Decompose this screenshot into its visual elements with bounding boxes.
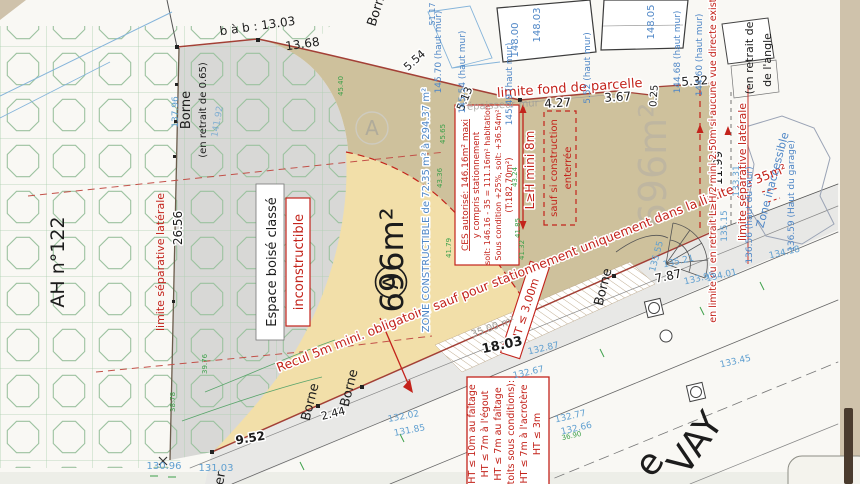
zone-constructible-label: ZONE CONSTRUCTIBLE de 72.35 m² à 294.37 …	[420, 88, 432, 332]
level-haut-mur: 145.49 (haut mur)	[505, 43, 515, 126]
road-level: 130.96	[147, 461, 182, 472]
heights-rules-box: HT ≤ 10m au faîtage HT ≤ 7m à l'égout HT…	[467, 377, 549, 484]
level-haut-mur: 136.56 (haut du mur)	[745, 166, 755, 263]
dim-26-56: 26.56	[171, 211, 185, 245]
parcel-area: 696m²	[373, 207, 411, 312]
ces-l3: soit: 146.16 - 35 = 111.16m² habitation	[483, 105, 492, 265]
borne-retrait-label: (en retrait de 0.65)	[198, 62, 209, 158]
level-137-96: 137.96	[171, 96, 181, 128]
ces-l4: Sous condition +25%, soit: +36.54m²	[494, 109, 503, 260]
cadastral-site-plan: Espace boisé classé inconstructible CES …	[0, 0, 860, 484]
ebc-line2: inconstructible	[292, 214, 307, 310]
heights-l3: HT ≤ 7m au faîtage	[493, 387, 504, 481]
retrait-angle-label: de l'angle	[761, 33, 774, 87]
survey-point: 39.76	[201, 353, 209, 374]
survey-point: 41.32	[518, 240, 526, 260]
scan-dark-streak	[844, 408, 853, 484]
enterree-l1: sauf si construction	[549, 119, 560, 217]
retrait-angle-label: (en retrait de	[743, 21, 756, 94]
limite-separative-left: limite séparative latérale	[154, 193, 167, 331]
ebc-line1: Espace boisé classé	[265, 197, 280, 326]
heights-l5: HT ≤ 7m à l'acrotère	[519, 384, 530, 483]
level-haut-mur: 144.68 (haut mur)	[673, 11, 683, 94]
ces-rules-box: CES autorisé: 146.16m² maxi y compris st…	[455, 105, 519, 265]
parcel-letter-watermark: A	[365, 116, 379, 140]
survey-point: 45.65	[439, 124, 447, 144]
survey-point: 43.24	[511, 166, 519, 187]
survey-point: 41.79	[445, 238, 453, 258]
level-135-15: 135.15	[720, 210, 730, 242]
survey-point: 41.85	[514, 218, 522, 238]
survey-point: 43.36	[436, 167, 444, 188]
heights-l2: HT ≤ 7m à l'égout	[480, 390, 491, 477]
level-133-31: 133.31	[732, 165, 742, 197]
level-haut-mur: 144.60 (haut mur)	[695, 14, 705, 97]
road-level: 131.03	[199, 463, 234, 474]
level-haut-garage: 136.59 (Haut du garage)	[787, 140, 797, 252]
parcel-main-label: A 696m²	[373, 207, 411, 312]
ces-l2: y compris stationnement	[472, 131, 482, 238]
lh-mini-8m-rule: L≥H mini 8m	[523, 131, 537, 210]
heights-l6: HT ≤ 3m	[532, 413, 543, 455]
level-haut-mur: 5.52 (haut mur)	[583, 32, 593, 103]
level-haut-mur: 145.70 (haut mur)	[434, 11, 444, 94]
heights-l1: HT ≤ 10m au faîtage	[467, 384, 478, 484]
survey-point: 38.78	[169, 392, 177, 412]
level-148-05: 148.05	[646, 5, 657, 40]
dim-0-25: 0.25	[648, 84, 661, 107]
ces-l1: CES autorisé: 146.16m² maxi	[460, 119, 471, 251]
survey-point: 45.40	[337, 76, 345, 96]
heights-l4: (toits sous conditions):	[506, 380, 517, 484]
ebc-label-box: Espace boisé classé inconstructible	[256, 184, 310, 340]
enterree-l2: enterrée	[562, 147, 574, 190]
borne-label: Borne	[179, 91, 194, 129]
parcel-id-ah122: AH n°122	[47, 216, 69, 307]
level-148-03: 148.03	[532, 8, 543, 43]
